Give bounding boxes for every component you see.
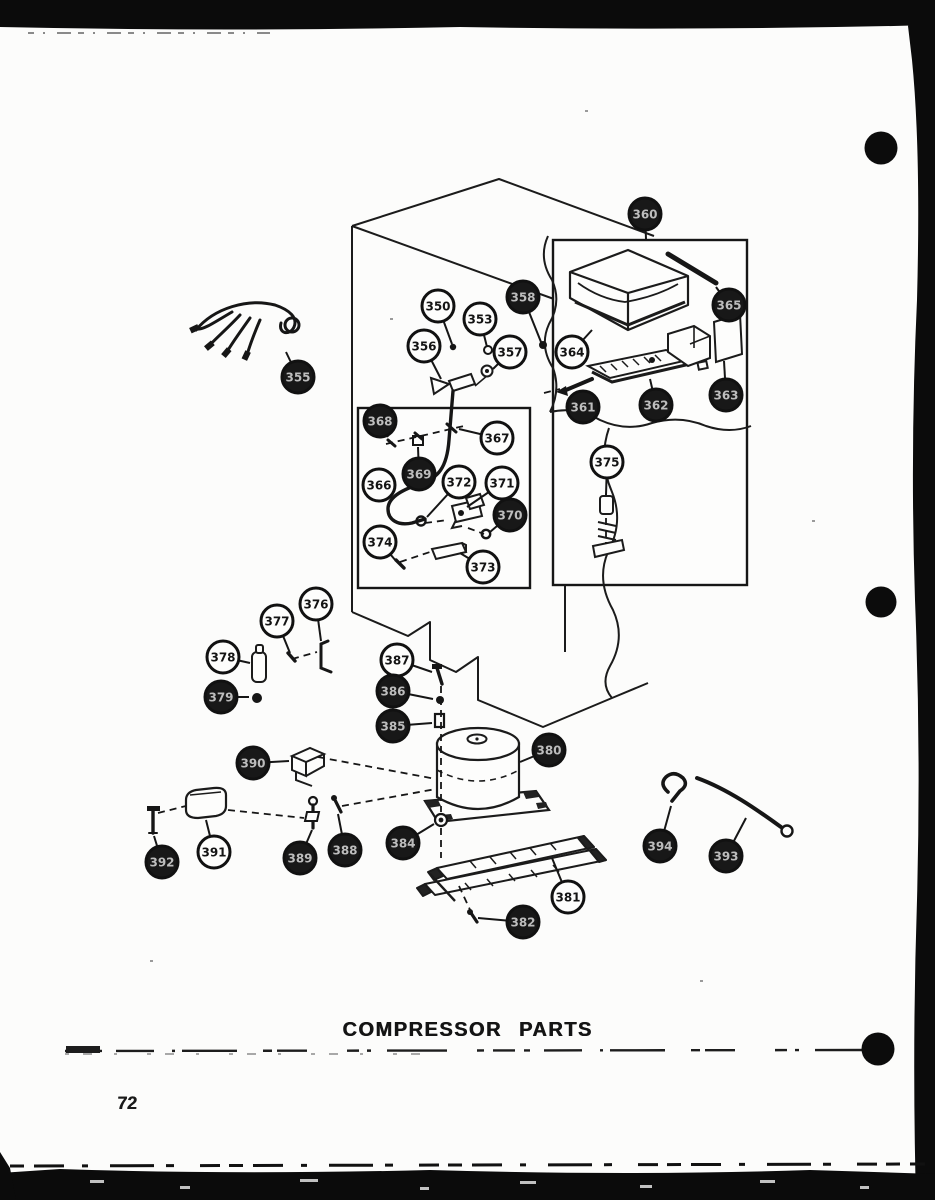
callout-386: 386 bbox=[377, 675, 433, 707]
callout-number: 377 bbox=[264, 615, 289, 629]
callout-361: 361 bbox=[567, 391, 599, 423]
callout-358: 358 bbox=[507, 281, 541, 342]
title-rule bbox=[65, 1046, 872, 1054]
mount-bracket-390 bbox=[292, 748, 324, 786]
callout-392: 392 bbox=[146, 836, 178, 878]
callout-number: 366 bbox=[366, 479, 391, 493]
callout-number: 362 bbox=[643, 399, 668, 413]
water-valve bbox=[431, 366, 493, 395]
callout-number: 381 bbox=[555, 891, 580, 905]
callout-number: 355 bbox=[285, 371, 310, 385]
callout-number: 376 bbox=[303, 598, 328, 612]
callout-number: 380 bbox=[536, 744, 561, 758]
callout-number: 353 bbox=[467, 313, 492, 327]
compressor-body bbox=[437, 728, 519, 809]
wire-harness bbox=[189, 303, 299, 361]
callout-number: 370 bbox=[497, 509, 522, 523]
callout-387: 387 bbox=[381, 644, 432, 676]
callout-353: 353 bbox=[464, 303, 496, 347]
callout-number: 391 bbox=[201, 846, 226, 860]
callout-number: 374 bbox=[367, 536, 392, 550]
callout-number: 373 bbox=[470, 561, 495, 575]
callout-384: 384 bbox=[387, 824, 434, 859]
bottom-scan-bar bbox=[0, 1169, 935, 1200]
callout-number: 392 bbox=[149, 856, 174, 870]
callout-number: 389 bbox=[287, 852, 312, 866]
callout-385: 385 bbox=[377, 710, 432, 742]
callout-388: 388 bbox=[329, 814, 361, 866]
callout-number: 371 bbox=[489, 477, 514, 491]
callout-368: 368 bbox=[364, 405, 396, 437]
callout-number: 369 bbox=[406, 468, 431, 482]
callout-number: 361 bbox=[570, 401, 595, 415]
callout-number: 372 bbox=[446, 476, 471, 490]
callout-number: 386 bbox=[380, 685, 405, 699]
callout-360: 360 bbox=[629, 198, 661, 239]
bolt-388 bbox=[331, 795, 341, 812]
callout-number: 358 bbox=[510, 291, 535, 305]
callout-355: 355 bbox=[282, 352, 314, 393]
callout-390: 390 bbox=[237, 747, 289, 779]
tube-rod-393 bbox=[697, 778, 793, 837]
callout-380: 380 bbox=[520, 734, 565, 766]
callout-376: 376 bbox=[300, 588, 332, 641]
callout-number: 394 bbox=[647, 840, 672, 854]
callout-number: 388 bbox=[332, 844, 357, 858]
rubber-mount-391 bbox=[186, 788, 226, 818]
callout-number: 357 bbox=[497, 346, 522, 360]
callout-number: 356 bbox=[411, 340, 436, 354]
callout-number: 378 bbox=[210, 651, 235, 665]
callout-number: 350 bbox=[425, 300, 450, 314]
page-number: 72 bbox=[116, 1093, 137, 1114]
callout-382: 382 bbox=[478, 906, 539, 938]
bolt-392 bbox=[147, 806, 160, 833]
callout-377: 377 bbox=[261, 605, 293, 653]
callout-number: 379 bbox=[208, 691, 233, 705]
callout-394: 394 bbox=[644, 806, 676, 862]
nut-379-target bbox=[252, 693, 262, 703]
screw-382-target bbox=[467, 909, 477, 922]
pin-389 bbox=[305, 797, 319, 828]
callout-391: 391 bbox=[198, 820, 230, 868]
clip-bracket-376 bbox=[321, 641, 331, 672]
overload-capacitor-378 bbox=[252, 645, 266, 682]
callout-number: 360 bbox=[632, 208, 657, 222]
callout-number: 385 bbox=[380, 720, 405, 734]
top-scan-bar bbox=[0, 0, 935, 30]
callout-389: 389 bbox=[284, 830, 316, 874]
callout-356: 356 bbox=[408, 330, 441, 379]
callout-number: 368 bbox=[367, 415, 392, 429]
screw-350-target bbox=[450, 344, 456, 350]
callout-379: 379 bbox=[205, 681, 249, 713]
page-title: COMPRESSOR PARTS bbox=[0, 1019, 935, 1042]
punch-hole bbox=[865, 132, 898, 165]
callout-number: 365 bbox=[716, 299, 741, 313]
grommet-384-target bbox=[435, 814, 447, 826]
callout-366: 366 bbox=[363, 469, 395, 501]
callout-number: 387 bbox=[384, 654, 409, 668]
callout-number: 363 bbox=[713, 389, 738, 403]
callout-number: 375 bbox=[594, 456, 619, 470]
callout-number: 384 bbox=[390, 837, 415, 851]
hook-clip-394 bbox=[663, 774, 685, 801]
bolt-column bbox=[432, 664, 444, 727]
callout-number: 364 bbox=[559, 346, 584, 360]
screw-353-target bbox=[484, 346, 492, 354]
callout-393: 393 bbox=[710, 818, 746, 872]
callout-378: 378 bbox=[207, 641, 250, 673]
callout-number: 393 bbox=[713, 850, 738, 864]
callout-365: 365 bbox=[713, 287, 745, 321]
callout-number: 382 bbox=[510, 916, 535, 930]
screw-377-target bbox=[288, 653, 295, 661]
callout-357: 357 bbox=[493, 336, 526, 369]
callout-number: 390 bbox=[240, 757, 265, 771]
callout-number: 367 bbox=[484, 432, 509, 446]
punch-hole bbox=[866, 587, 897, 618]
